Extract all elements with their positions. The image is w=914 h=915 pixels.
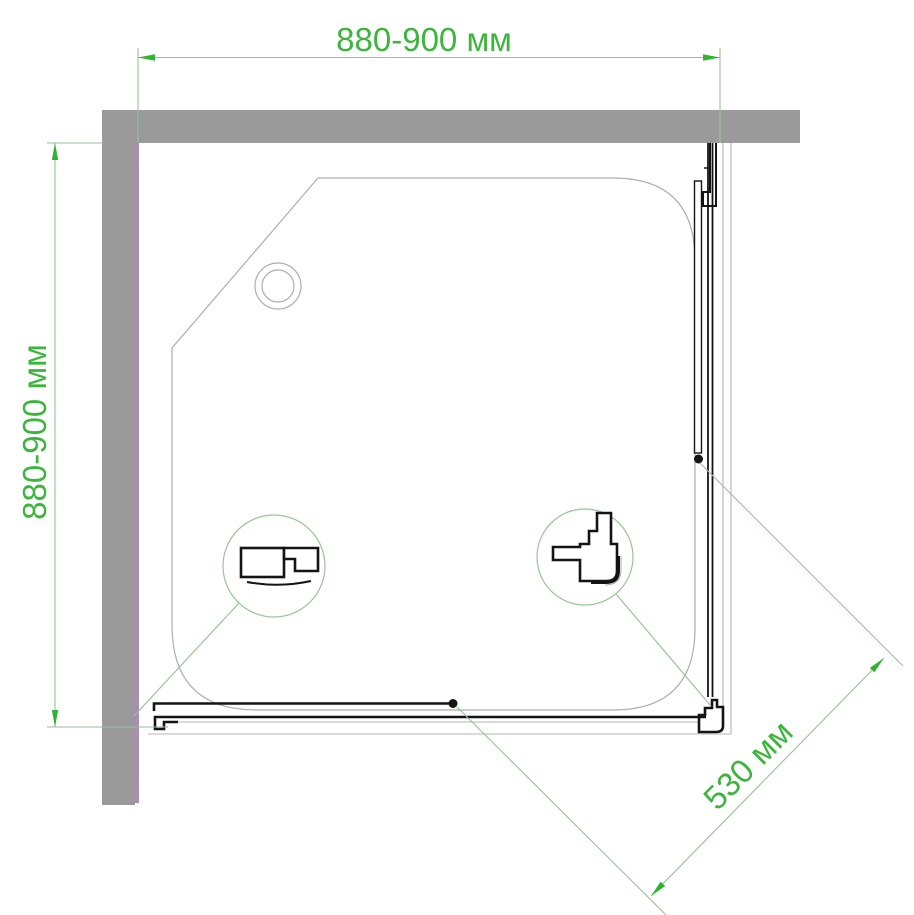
corner-profile-icon bbox=[553, 513, 621, 585]
right-door-handle-end bbox=[694, 455, 703, 464]
dimension-label-left: 880-900 мм bbox=[16, 344, 53, 520]
rail-profile-base bbox=[247, 581, 311, 585]
corner-profile-body bbox=[553, 513, 617, 581]
dimension-label-top: 880-900 мм bbox=[336, 21, 512, 58]
dim-arrow-right-icon bbox=[703, 54, 720, 60]
rail-profile-box bbox=[241, 548, 284, 577]
detail-leader-left bbox=[134, 603, 239, 716]
dim-arrow-down-icon bbox=[52, 710, 58, 727]
dim-arrow-up-icon bbox=[52, 143, 58, 160]
shower-tray-outline bbox=[172, 178, 695, 710]
shower-enclosure-diagram: 880-900 мм 880-900 мм 530 мм bbox=[0, 0, 914, 915]
drain-icon bbox=[255, 263, 301, 309]
wall-accent-strip bbox=[133, 143, 139, 803]
right-wall-profile bbox=[703, 143, 716, 206]
detail-leader-right bbox=[616, 594, 711, 706]
bottom-rail-profile-icon bbox=[241, 548, 318, 585]
rail-profile-hook bbox=[284, 548, 318, 571]
dim-arrow-left-icon bbox=[138, 54, 155, 60]
dim-line-diagonal bbox=[651, 658, 884, 896]
top-wall bbox=[102, 110, 800, 143]
left-wall bbox=[102, 110, 135, 805]
right-sliding-glass-panel bbox=[695, 181, 702, 453]
outer-frame-edges bbox=[148, 143, 731, 734]
shower-tray bbox=[172, 178, 695, 710]
bottom-rail-with-corner-step bbox=[155, 717, 706, 729]
drain-inner-circle bbox=[262, 270, 294, 302]
bottom-door-assembly bbox=[154, 699, 706, 729]
dimension-door-diagonal: 530 мм bbox=[456, 463, 903, 915]
detail-callout-left bbox=[134, 515, 325, 716]
technical-drawing-canvas: 880-900 мм 880-900 мм 530 мм bbox=[0, 0, 914, 915]
dim-arrow-diag-lower-icon bbox=[649, 882, 665, 899]
dim-arrow-diag-upper-icon bbox=[870, 656, 886, 673]
ext-line-diag-lower bbox=[456, 706, 666, 915]
dimension-left-depth: 880-900 мм bbox=[16, 143, 168, 727]
right-door-assembly bbox=[694, 143, 723, 732]
